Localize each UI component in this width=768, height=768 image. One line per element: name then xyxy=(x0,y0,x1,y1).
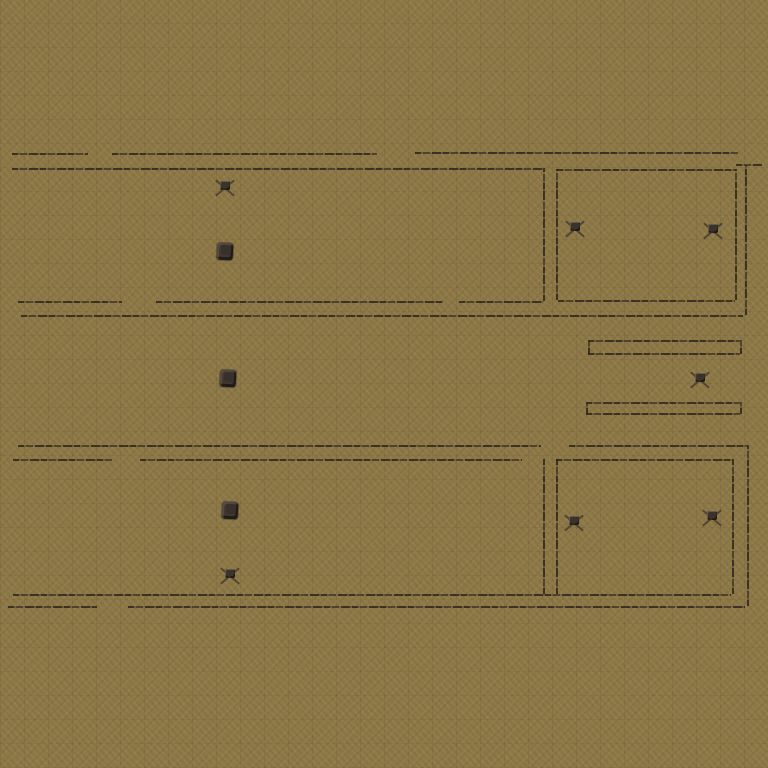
cross-marker-sprite[interactable] xyxy=(701,219,725,243)
cross-marker-sprite[interactable] xyxy=(563,217,587,241)
wall-room4-right-wall xyxy=(732,459,734,594)
wall-capsule1-right-cap xyxy=(740,340,742,354)
wall-room2-top xyxy=(557,169,736,171)
wall-room3-top-outer-b xyxy=(569,445,747,447)
cross-marker-core xyxy=(708,224,718,233)
wall-room3-top-inner-b xyxy=(140,459,522,461)
cross-marker-core xyxy=(707,511,717,520)
wall-capsule1-left-cap xyxy=(588,340,590,354)
wall-room1-top-outer-b xyxy=(112,153,377,155)
wall-row1-bottom-outer xyxy=(21,315,743,317)
cross-marker-sprite[interactable] xyxy=(562,511,586,535)
wall-outer-right-top xyxy=(745,165,747,315)
wall-capsule2-right-cap xyxy=(740,402,742,414)
wall-room1-top-outer-c xyxy=(415,152,738,154)
cross-marker-core xyxy=(695,373,705,382)
wall-capsule1-bottom xyxy=(588,353,740,355)
cross-marker-core xyxy=(569,516,579,525)
wall-room2-topright-stub xyxy=(736,164,762,166)
wall-room4-left-wall xyxy=(556,459,558,594)
blob-object-sprite[interactable] xyxy=(220,370,237,388)
wall-room2-right-wall xyxy=(735,169,737,300)
wall-capsule2-bottom xyxy=(586,413,740,415)
cross-marker-core xyxy=(225,569,235,578)
wall-room3-top-inner-a xyxy=(13,459,112,461)
wall-room1-top-outer-a xyxy=(12,153,88,155)
game-viewport[interactable] xyxy=(0,0,768,768)
wall-row2-bottom-inner xyxy=(13,594,731,596)
wall-room2-left-wall xyxy=(556,169,558,300)
wall-capsule1-top xyxy=(588,340,740,342)
wall-capsule2-left-cap xyxy=(586,402,588,414)
cross-marker-sprite[interactable] xyxy=(688,368,712,392)
blob-object-sprite[interactable] xyxy=(217,243,234,261)
wall-room1-top-inner xyxy=(12,168,543,170)
cross-marker-sprite[interactable] xyxy=(218,564,242,588)
wall-row2-bottom-outer-b xyxy=(128,606,745,608)
wall-room1-right-wall xyxy=(543,168,545,301)
wall-room4-top xyxy=(556,459,732,461)
cross-marker-sprite[interactable] xyxy=(700,506,724,530)
wall-outer-right-bottom xyxy=(747,445,749,606)
wall-room1-bottom-inner-b xyxy=(156,301,443,303)
wall-room1-bottom-inner-c xyxy=(459,301,543,303)
wall-room2-bottom xyxy=(558,300,735,302)
cross-marker-core xyxy=(220,181,230,190)
wall-room1-bottom-inner-a xyxy=(18,301,122,303)
wall-room3-right-wall xyxy=(543,459,545,594)
cross-marker-sprite[interactable] xyxy=(213,176,237,200)
cross-marker-core xyxy=(570,222,580,231)
wall-room3-top-outer-a xyxy=(18,445,541,447)
wall-row2-bottom-outer-a xyxy=(8,606,97,608)
blob-object-sprite[interactable] xyxy=(222,502,239,520)
wall-capsule2-top xyxy=(586,402,740,404)
